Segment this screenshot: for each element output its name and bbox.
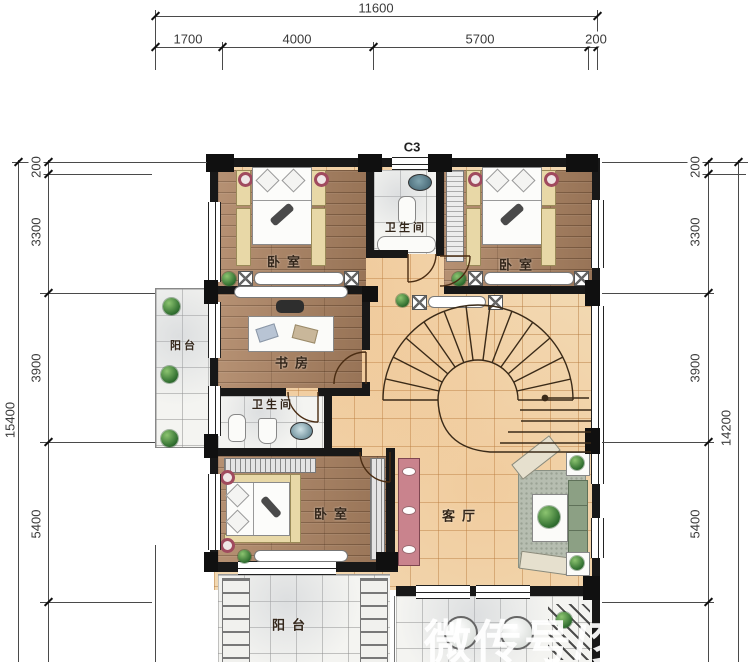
vase (402, 545, 416, 554)
round-rug (220, 538, 235, 553)
room-label-bedroom-top-left: 卧室 (267, 252, 307, 271)
window-code-label: C3 (402, 140, 423, 155)
plant-icon (161, 430, 178, 447)
window-bedroom-bl-south (238, 561, 336, 575)
room-label-balcony-bottom: 阳台 (272, 615, 312, 634)
window-balcony-lower (208, 386, 221, 436)
wall-post (362, 286, 378, 302)
dim-ext-line (155, 10, 156, 70)
dim-left-seg2: 3300 (29, 216, 44, 249)
blanket-line (253, 200, 311, 201)
wall-study-bottom-a (210, 388, 286, 396)
dim-ext-line (602, 162, 748, 163)
dim-line-left-segments (48, 160, 49, 662)
room-label-bedroom-bottom: 卧室 (314, 504, 354, 523)
plant-icon (222, 272, 236, 286)
wall-bedroom-tr-bottom (444, 286, 600, 294)
dim-ext-line (40, 174, 152, 175)
wall-post (204, 280, 218, 304)
dim-line-right-total (738, 160, 739, 662)
dim-line-left-total (18, 160, 19, 662)
window-bedroom-tl (208, 202, 221, 282)
plant-icon (570, 456, 584, 470)
dim-top-seg2: 4000 (281, 32, 314, 47)
plant-icon (452, 272, 466, 286)
planter-box-icon (412, 295, 427, 310)
bolster-cushion (260, 495, 282, 518)
window-seat (484, 272, 574, 285)
plant-icon (161, 366, 178, 383)
dim-left-total: 15400 (3, 400, 18, 440)
room-label-living-room: 客厅 (442, 506, 482, 525)
dim-left-seg3: 3900 (29, 352, 44, 385)
console-cabinet (398, 458, 420, 566)
wall-post (585, 428, 600, 454)
window-seat (254, 272, 344, 285)
round-rug (544, 172, 559, 187)
floor-plan-canvas: 11600 1700 4000 5700 200 15400 200 3300 … (0, 0, 750, 662)
dim-top-seg4: 200 (583, 32, 609, 47)
round-rug (220, 470, 235, 485)
round-rug (314, 172, 329, 187)
room-label-bathroom-middle: 卫生间 (252, 396, 294, 412)
window-living-south-1 (416, 585, 470, 599)
dim-ext-line (155, 545, 156, 662)
room-label-bedroom-top-right: 卧室 (499, 255, 539, 274)
wall-post (376, 552, 398, 570)
window-bedroom-bl (208, 474, 221, 550)
window-seat (254, 550, 348, 562)
blanket-line (253, 483, 254, 535)
double-bed (482, 167, 542, 245)
wall-study-right-upper (362, 294, 370, 350)
dim-right-seg2: 3300 (688, 216, 703, 249)
wall-post (358, 154, 382, 172)
pillow (225, 509, 249, 533)
wall-post (566, 154, 598, 172)
wardrobe-slats (446, 170, 464, 262)
pillow (225, 483, 249, 507)
wall-bathroom-top-bottom (366, 250, 408, 258)
dim-right-seg4: 5400 (688, 508, 703, 541)
wall-post (206, 154, 234, 172)
bed-frame-right (290, 474, 301, 543)
balcony-railing (360, 578, 388, 662)
planter-box-icon (468, 271, 483, 286)
room-label-study: 书房 (275, 353, 315, 372)
wardrobe (311, 208, 326, 266)
planter-box-icon (238, 271, 253, 286)
round-rug (238, 172, 253, 187)
dim-left-seg4: 5400 (29, 508, 44, 541)
dim-right-seg3: 3900 (688, 352, 703, 385)
wall-bedroom-bl-top (210, 448, 362, 456)
sofa-cushions (568, 480, 588, 558)
room-label-bathroom-top: 卫生间 (385, 219, 427, 235)
dim-right-total: 14200 (719, 408, 734, 448)
planter-box-icon (488, 295, 503, 310)
window-seat (234, 286, 348, 298)
planter-box-icon (344, 271, 359, 286)
watermark-text: 微传号/梦 (424, 604, 640, 662)
dim-ext-line (40, 293, 155, 294)
dim-right-seg1: 200 (688, 154, 703, 180)
dim-top-seg3: 5700 (464, 32, 497, 47)
dim-top-total: 11600 (356, 1, 395, 16)
dim-ext-line (40, 442, 155, 443)
pillow (281, 168, 305, 192)
window-living-south-2 (476, 585, 530, 599)
pillow (485, 168, 509, 192)
double-bed (252, 167, 312, 245)
wall-post (428, 154, 452, 172)
dim-ext-line (40, 602, 152, 603)
book (292, 324, 319, 343)
blanket-line (483, 200, 541, 201)
window-c3 (392, 157, 429, 170)
plant-icon (238, 550, 251, 563)
pedestal-sink (258, 418, 277, 444)
washbasin (408, 174, 432, 191)
wall-bathroom-top-right (436, 158, 444, 256)
shoe-cabinet (428, 296, 486, 308)
radiator-cabinet (370, 458, 385, 560)
wall-post (583, 576, 600, 600)
plant-icon (396, 294, 409, 307)
dim-ext-line (602, 442, 714, 443)
wardrobe (541, 208, 556, 266)
room-label-balcony-left: 阳台 (170, 337, 198, 353)
wardrobe (466, 208, 481, 266)
wardrobe-slats (224, 458, 316, 473)
wall-post (204, 434, 218, 458)
pillow (255, 168, 279, 192)
dim-top-seg1: 1700 (172, 32, 205, 47)
wall-post (204, 552, 218, 572)
window-balcony-upper (208, 302, 221, 358)
wall-post (585, 280, 600, 306)
vase (402, 506, 416, 515)
desk-chair (276, 300, 304, 313)
pillow (511, 168, 535, 192)
plant-icon (538, 506, 560, 528)
round-basin (290, 422, 313, 440)
window-stairwell (591, 306, 604, 484)
balcony-railing (222, 578, 250, 662)
bolster-cushion (499, 202, 524, 226)
wall-bathroom-top-left (366, 158, 374, 258)
dim-line-top-total (155, 16, 598, 17)
dim-line-right-segments (708, 160, 709, 662)
porch-edge-line (394, 596, 395, 662)
bolster-cushion (269, 202, 294, 226)
round-rug (468, 172, 483, 187)
plant-icon (570, 556, 584, 570)
window-bedroom-tr (591, 200, 604, 268)
window-living-right (591, 518, 604, 558)
wardrobe (236, 208, 251, 266)
dim-ext-line (602, 293, 714, 294)
double-bed (226, 482, 290, 536)
dim-left-seg1: 200 (29, 154, 44, 180)
desk (248, 316, 334, 352)
wall-bathroom-mid-right (324, 388, 332, 456)
plant-icon (163, 298, 180, 315)
papers (255, 323, 278, 342)
vase (402, 467, 416, 476)
toilet (228, 414, 246, 442)
dim-ext-line (602, 602, 714, 603)
